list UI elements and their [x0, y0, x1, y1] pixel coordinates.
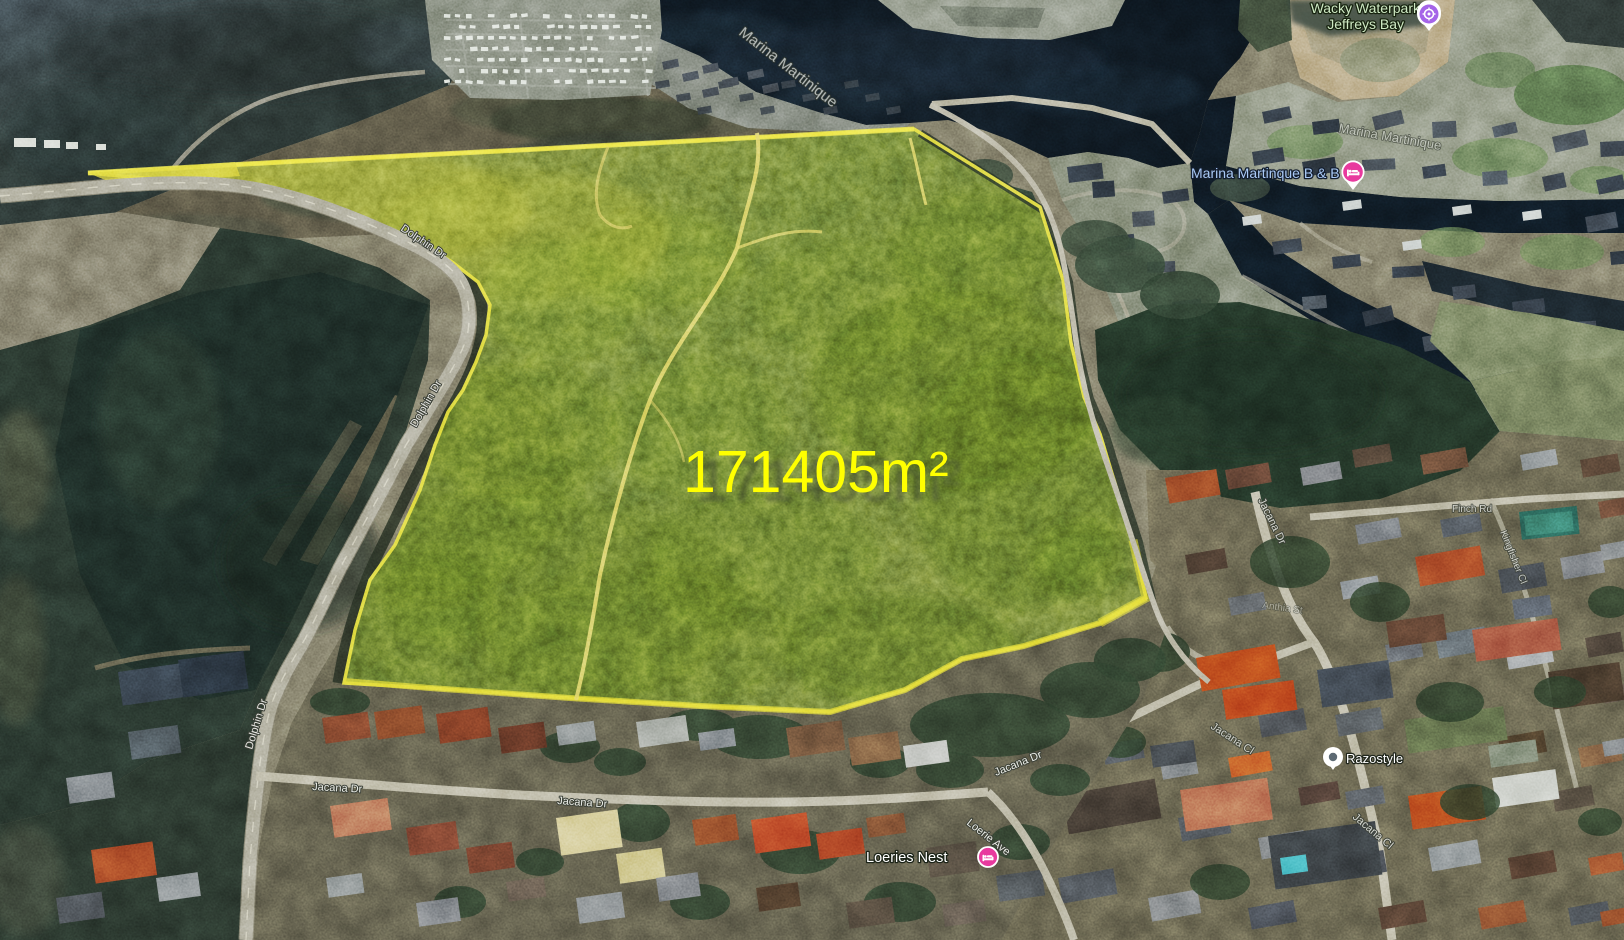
svg-text:171405m²: 171405m²	[683, 439, 949, 505]
svg-text:Finch Rd: Finch Rd	[1452, 504, 1492, 515]
svg-text:Marina Martinque B & B: Marina Martinque B & B	[1191, 165, 1340, 181]
svg-text:Razostyle: Razostyle	[1346, 751, 1403, 766]
svg-text:Loeries Nest: Loeries Nest	[866, 850, 947, 866]
svg-text:Wacky Waterpark: Wacky Waterpark	[1311, 0, 1421, 16]
svg-text:Jeffreys Bay: Jeffreys Bay	[1327, 16, 1404, 32]
